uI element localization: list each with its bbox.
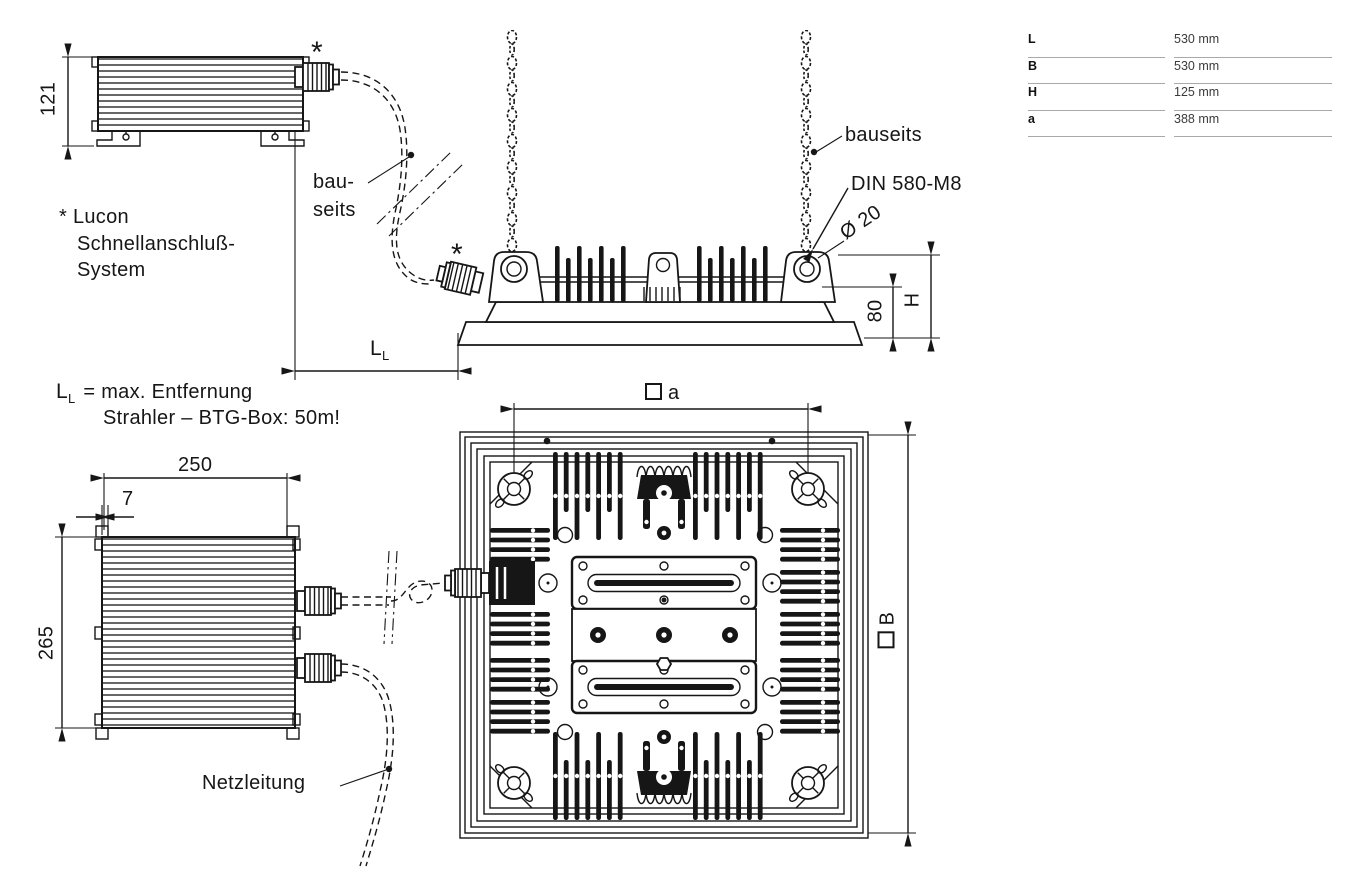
ll-symbol-sub: L <box>68 391 76 406</box>
dim-121-label: 121 <box>37 82 62 116</box>
leader-bau-seits <box>368 152 414 183</box>
bauseits-wrapped-line1: bau- <box>313 170 354 195</box>
spec-label: B <box>1028 58 1165 85</box>
floodlight-top-view <box>445 403 868 838</box>
lucon-note-line3: System <box>77 258 145 283</box>
dim-121 <box>62 57 96 146</box>
floodlight-side-view <box>435 30 862 345</box>
lucon-note-line1: * Lucon <box>59 205 129 230</box>
center-comb <box>644 287 680 301</box>
ll-note-line2: Strahler – BTG-Box: 50m! <box>103 406 340 431</box>
btg-box-front-view <box>95 526 341 739</box>
square-a-label: a <box>645 381 679 406</box>
spec-value: 530 mm <box>1174 31 1332 58</box>
chain-left <box>505 30 519 256</box>
table-row: B 530 mm <box>1028 58 1332 85</box>
ll-symbol: L <box>56 380 68 403</box>
leader-din <box>813 188 848 249</box>
spec-value: 530 mm <box>1174 58 1332 85</box>
leader-bauseits <box>811 136 842 155</box>
spec-table: L 530 mm B 530 mm H 125 mm a 388 mm <box>1028 31 1332 137</box>
eyebolt-right <box>794 256 820 282</box>
table-row: a 388 mm <box>1028 111 1332 138</box>
bauseits-wrapped-line2: seits <box>313 198 356 223</box>
spec-label: L <box>1028 31 1165 58</box>
cable-box-to-topview <box>341 551 443 644</box>
dim-265-label: 265 <box>35 626 60 660</box>
dim-250-label: 250 <box>178 453 212 478</box>
technical-drawing-page: * * * Lucon Schnellanschluß- System LL =… <box>0 0 1345 878</box>
chain-right <box>799 30 813 256</box>
spec-value: 388 mm <box>1174 111 1332 138</box>
spec-value: 125 mm <box>1174 84 1332 111</box>
ll-note-line1: LL = max. Entfernung <box>56 379 252 407</box>
cable-netzleitung <box>340 664 393 866</box>
dim-265 <box>55 537 100 728</box>
table-row: H 125 mm <box>1028 84 1332 111</box>
spec-label: H <box>1028 84 1165 111</box>
asterisk-floodlight: * <box>451 240 463 270</box>
asterisk-btg: * <box>311 38 323 68</box>
table-row: L 530 mm <box>1028 31 1332 58</box>
cable-btg-to-floodlight <box>341 72 464 284</box>
lucon-note-line2: Schnellanschluß- <box>77 232 235 257</box>
btg-box-side-view <box>92 57 339 146</box>
eyebolt-left <box>501 256 527 282</box>
dim-7-label: 7 <box>122 487 133 512</box>
heatsink-fins-left <box>555 246 626 302</box>
din-580-m8-label: DIN 580-M8 <box>851 172 962 197</box>
ll-note-rest: = max. Entfernung <box>83 381 252 403</box>
ll-dim-label: LL <box>370 336 390 364</box>
netzleitung-label: Netzleitung <box>202 771 305 796</box>
bauseits-label: bauseits <box>845 123 922 148</box>
spec-label: a <box>1028 111 1165 138</box>
square-symbol <box>878 631 895 648</box>
heatsink-fins-right <box>697 246 768 302</box>
dim-h-label: H <box>901 293 926 308</box>
square-b-label: B <box>876 612 901 649</box>
square-symbol <box>645 383 662 400</box>
dim-80-label: 80 <box>864 300 889 323</box>
